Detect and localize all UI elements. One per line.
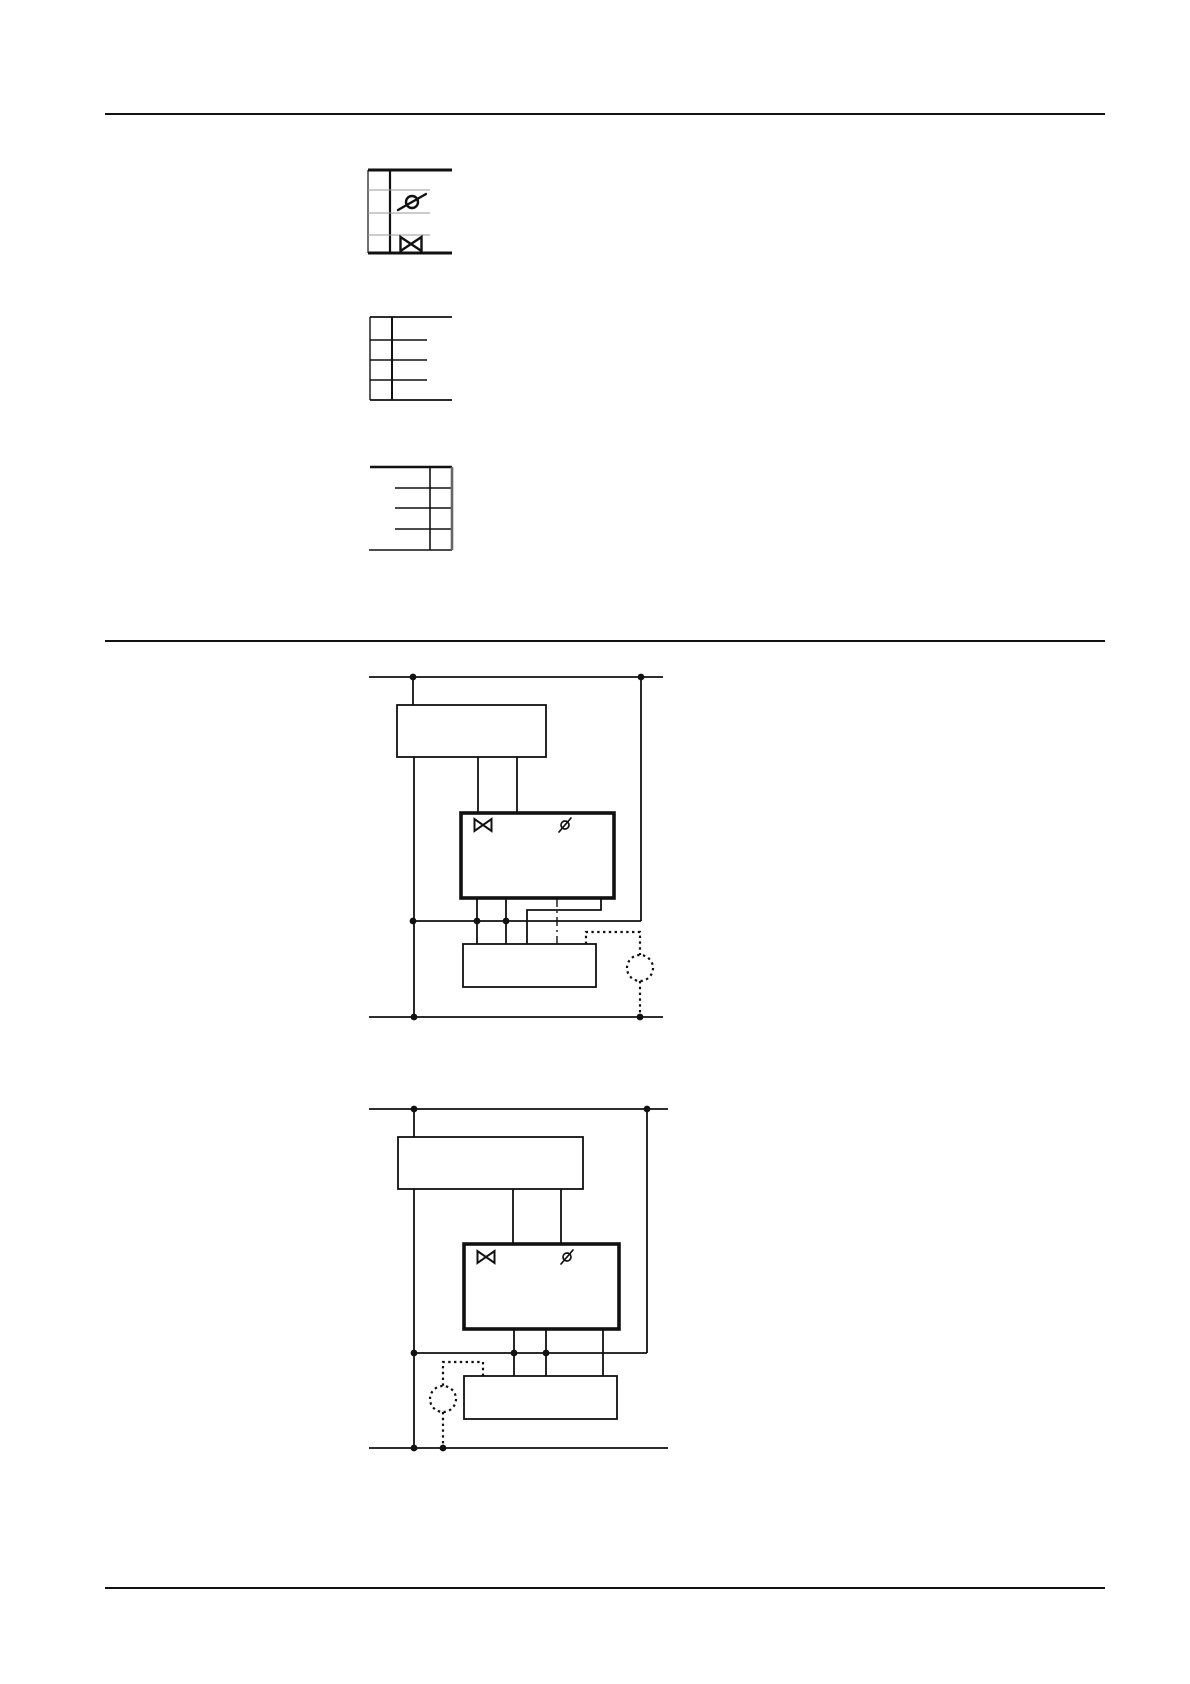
- junction-dot: [411, 1350, 418, 1357]
- junction-dot: [543, 1350, 550, 1357]
- sensor-circle: [627, 955, 653, 981]
- junction-dot: [440, 1445, 447, 1452]
- junction-dot: [411, 1445, 418, 1452]
- terminal-box: [464, 1376, 617, 1419]
- junction-dot: [637, 1014, 644, 1021]
- sensor-circle: [430, 1386, 456, 1412]
- junction-dot: [410, 918, 417, 925]
- valve-symbol: [478, 1251, 495, 1263]
- terminal-box: [463, 944, 596, 987]
- terminal-legend-3: [369, 467, 452, 550]
- junction-dot: [644, 1106, 651, 1113]
- junction-dot: [410, 674, 417, 681]
- wiring-diagram-2: [369, 1106, 668, 1452]
- controller-box: [398, 1137, 583, 1189]
- junction-dot: [411, 1106, 418, 1113]
- sensor-lead-dotted: [443, 1362, 483, 1386]
- junction-dot: [503, 918, 510, 925]
- junction-dot: [638, 674, 645, 681]
- valve-symbol: [475, 819, 492, 831]
- actuator-symbol: [561, 1250, 573, 1264]
- controller-box: [397, 705, 546, 757]
- junction-dot: [511, 1350, 518, 1357]
- valve-symbol: [401, 237, 422, 251]
- terminal-legend-1: [368, 170, 452, 253]
- terminal-legend-2: [370, 317, 452, 400]
- junction-dot: [411, 1014, 418, 1021]
- actuator-symbol: [398, 194, 426, 210]
- junction-dot: [474, 918, 481, 925]
- wiring-diagram-1: [369, 674, 663, 1021]
- actuator-symbol: [559, 818, 571, 832]
- document-page: [0, 0, 1190, 1684]
- wiring-diagram-canvas: [0, 0, 1190, 1684]
